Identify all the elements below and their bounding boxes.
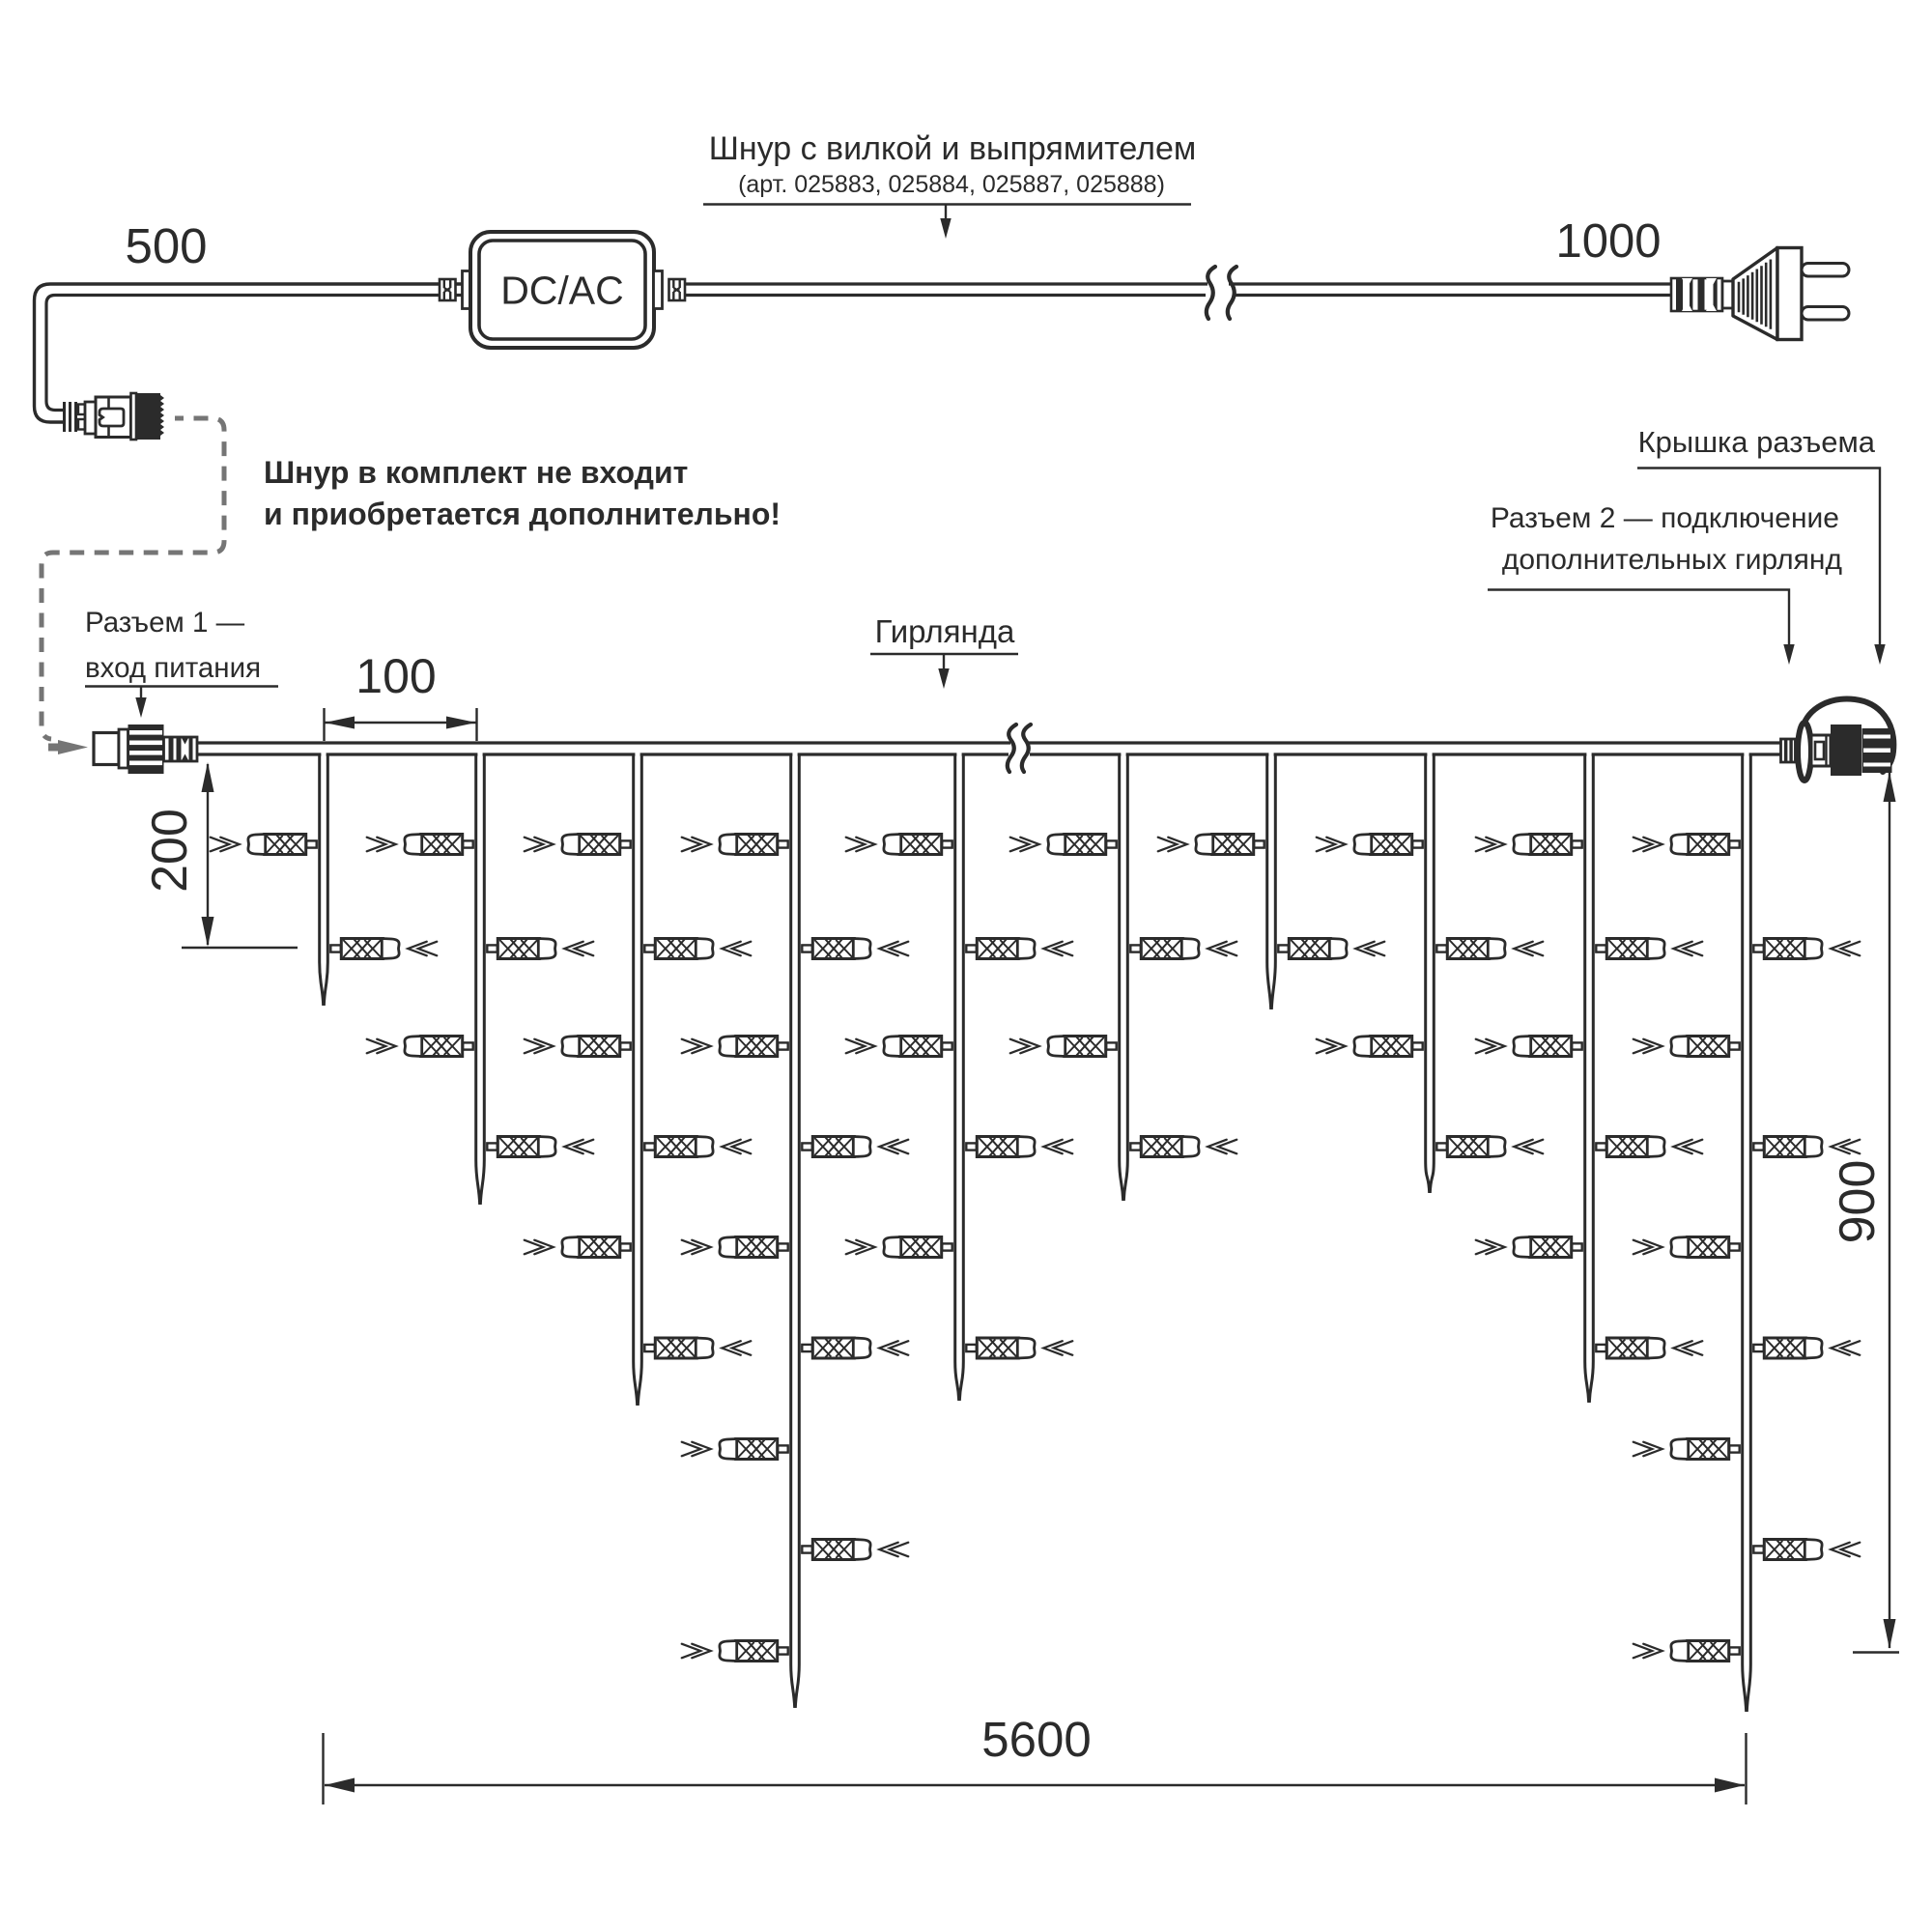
svg-text:5600: 5600 bbox=[981, 1712, 1091, 1767]
svg-text:Разъем 1 —: Разъем 1 — bbox=[85, 607, 245, 639]
svg-text:Шнур с вилкой и выпрямителем: Шнур с вилкой и выпрямителем bbox=[709, 130, 1197, 167]
svg-text:200: 200 bbox=[142, 809, 198, 893]
svg-text:и приобретается дополнительно!: и приобретается дополнительно! bbox=[264, 497, 781, 531]
svg-text:500: 500 bbox=[125, 218, 207, 273]
svg-text:вход питания: вход питания bbox=[85, 652, 261, 684]
svg-text:100: 100 bbox=[355, 649, 436, 703]
svg-text:1000: 1000 bbox=[1555, 215, 1661, 268]
svg-text:дополнительных гирлянд: дополнительных гирлянд bbox=[1502, 544, 1842, 576]
svg-text:DC/AC: DC/AC bbox=[500, 269, 624, 313]
svg-text:900: 900 bbox=[1830, 1160, 1886, 1244]
svg-text:Гирлянда: Гирлянда bbox=[875, 613, 1015, 649]
svg-text:Крышка разъема: Крышка разъема bbox=[1638, 425, 1876, 459]
svg-text:Шнур в комплект не входит: Шнур в комплект не входит bbox=[264, 455, 688, 490]
svg-text:Разъем 2 — подключение: Разъем 2 — подключение bbox=[1491, 502, 1839, 534]
svg-text:(арт. 025883, 025884, 025887,: (арт. 025883, 025884, 025887, 025888) bbox=[738, 171, 1165, 198]
